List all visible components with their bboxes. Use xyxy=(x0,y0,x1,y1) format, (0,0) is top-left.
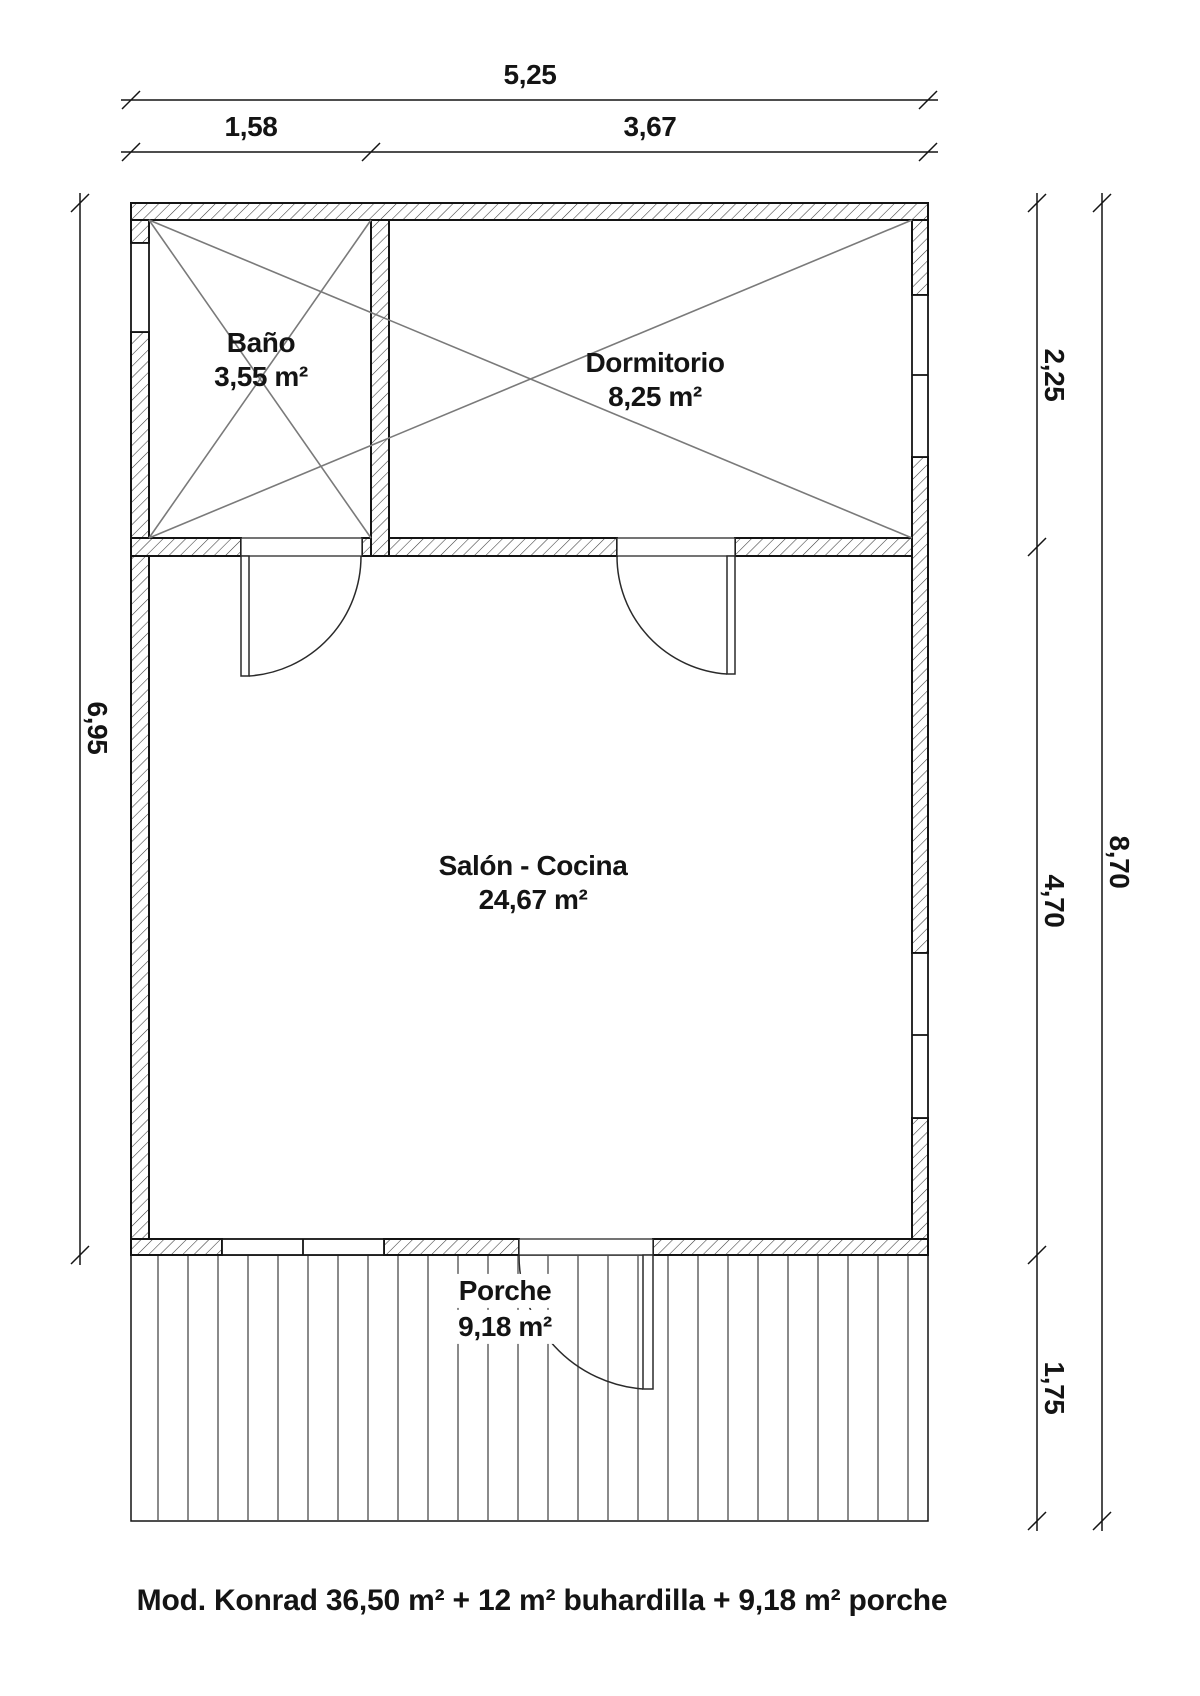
door-opening-bath xyxy=(241,538,362,556)
dim-label-right-top: 2,25 xyxy=(1038,349,1070,402)
wall-bottom-2 xyxy=(384,1239,519,1255)
wall-bottom-3 xyxy=(653,1239,928,1255)
door-leaf-bath xyxy=(241,556,249,676)
door-swing-bedroom xyxy=(617,556,727,674)
wall-top xyxy=(131,203,928,220)
window-bath-left xyxy=(131,243,149,332)
room-label-salon-area: 24,67 m² xyxy=(479,884,588,916)
wall-left-upper xyxy=(131,220,149,243)
dim-label-top-total: 5,25 xyxy=(504,59,557,91)
dim-label-left-total: 6,95 xyxy=(81,702,113,755)
dim-label-right-total: 8,70 xyxy=(1103,836,1135,889)
dim-label-top-left: 1,58 xyxy=(225,111,278,143)
room-label-dormitorio-area: 8,25 m² xyxy=(608,381,702,413)
door-opening-porch xyxy=(519,1239,653,1255)
room-label-salon-name: Salón - Cocina xyxy=(439,850,628,882)
door-leaf-porch xyxy=(643,1255,653,1389)
wall-bottom-1 xyxy=(131,1239,222,1255)
plan-caption: Mod. Konrad 36,50 m² + 12 m² buhardilla … xyxy=(137,1584,948,1619)
wall-right-3 xyxy=(912,1118,928,1239)
plan-drawing xyxy=(0,0,1200,1696)
door-leaf-bedroom xyxy=(727,556,735,674)
room-label-dormitorio-name: Dormitorio xyxy=(585,347,724,379)
wall-right-1 xyxy=(912,220,928,295)
wall-right-2 xyxy=(912,457,928,953)
dim-label-top-right: 3,67 xyxy=(624,111,677,143)
floor-plan: 5,25 1,58 3,67 6,95 2,25 4,70 1,75 8,70 … xyxy=(0,0,1200,1696)
door-opening-bedroom xyxy=(617,538,735,556)
room-label-bano-area: 3,55 m² xyxy=(214,361,308,393)
windows xyxy=(131,243,928,1255)
wall-interior-h-3 xyxy=(735,538,912,556)
wall-interior-v xyxy=(371,220,389,556)
room-label-porche-area: 9,18 m² xyxy=(450,1310,560,1344)
room-label-porche-name: Porche xyxy=(451,1274,560,1308)
wall-left-lower xyxy=(131,332,149,1239)
window-bedroom-right xyxy=(912,295,928,457)
door-swing-bath xyxy=(249,556,361,676)
wall-interior-h-1 xyxy=(131,538,241,556)
wall-interior-h-2 xyxy=(362,538,617,556)
dim-label-right-bottom: 1,75 xyxy=(1038,1362,1070,1415)
room-label-bano-name: Baño xyxy=(227,327,295,359)
dim-label-right-middle: 4,70 xyxy=(1038,875,1070,928)
